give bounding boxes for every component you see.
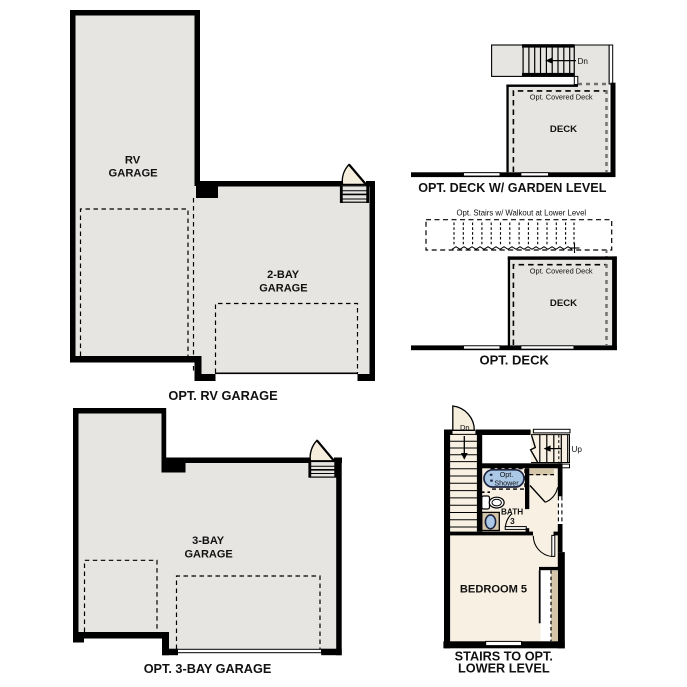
svg-text:Up: Up [572, 445, 583, 454]
svg-text:GARAGE: GARAGE [184, 549, 232, 561]
svg-text:OPT. 3-BAY GARAGE: OPT. 3-BAY GARAGE [144, 662, 272, 676]
svg-text:GARAGE: GARAGE [259, 283, 307, 295]
svg-text:BEDROOM 5: BEDROOM 5 [460, 583, 527, 595]
svg-text:Dn: Dn [578, 57, 589, 66]
svg-text:Shower: Shower [494, 479, 519, 488]
svg-text:OPT. RV GARAGE: OPT. RV GARAGE [168, 388, 278, 403]
svg-text:Opt. Stairs w/ Walkout at Lowe: Opt. Stairs w/ Walkout at Lower Level [456, 208, 586, 217]
svg-text:DECK: DECK [550, 124, 577, 135]
svg-text:3-BAY: 3-BAY [192, 535, 225, 547]
svg-text:LOWER LEVEL: LOWER LEVEL [458, 661, 550, 675]
svg-text:OPT. DECK W/ GARDEN LEVEL: OPT. DECK W/ GARDEN LEVEL [418, 181, 607, 195]
svg-text:2-BAY: 2-BAY [267, 269, 300, 281]
svg-text:Dn: Dn [460, 423, 470, 432]
svg-text:RV: RV [125, 154, 141, 166]
svg-text:Opt.: Opt. [500, 470, 514, 479]
svg-text:Opt. Covered Deck: Opt. Covered Deck [530, 93, 593, 102]
svg-text:DECK: DECK [550, 298, 577, 309]
svg-text:Opt. Covered Deck: Opt. Covered Deck [530, 266, 593, 275]
svg-text:3: 3 [510, 517, 515, 526]
svg-text:BATH: BATH [501, 507, 523, 516]
svg-text:GARAGE: GARAGE [109, 168, 159, 180]
svg-text:OPT. DECK: OPT. DECK [480, 352, 550, 367]
